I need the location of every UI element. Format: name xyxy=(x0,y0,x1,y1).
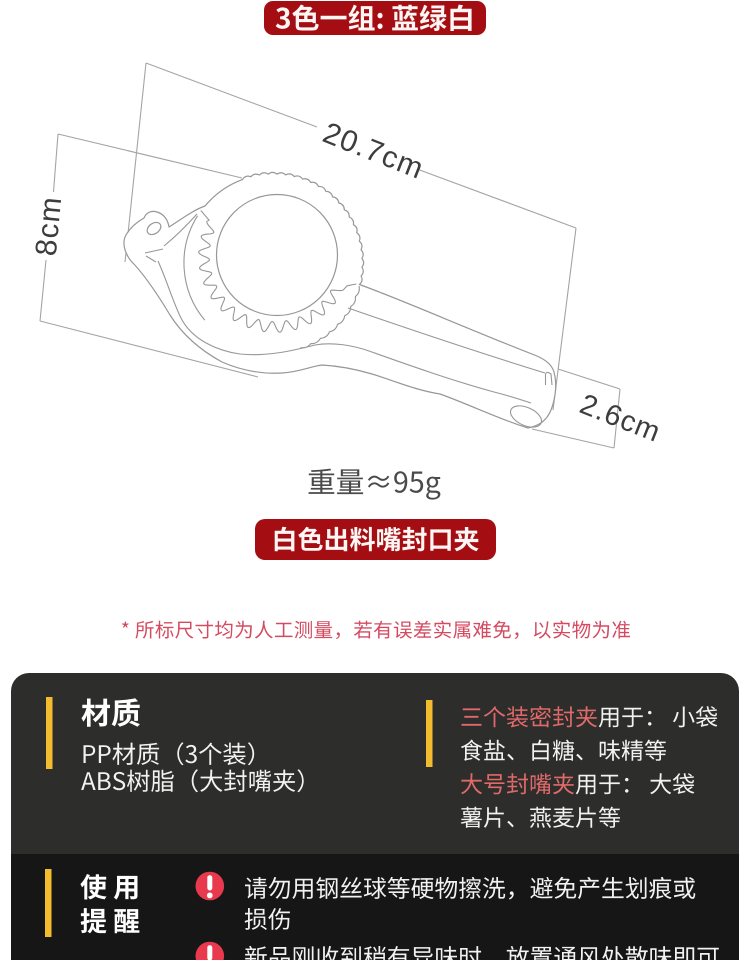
svg-text:20.7cm: 20.7cm xyxy=(318,116,428,185)
svg-text:8cm: 8cm xyxy=(30,195,69,258)
svg-text:2.6cm: 2.6cm xyxy=(575,388,665,449)
